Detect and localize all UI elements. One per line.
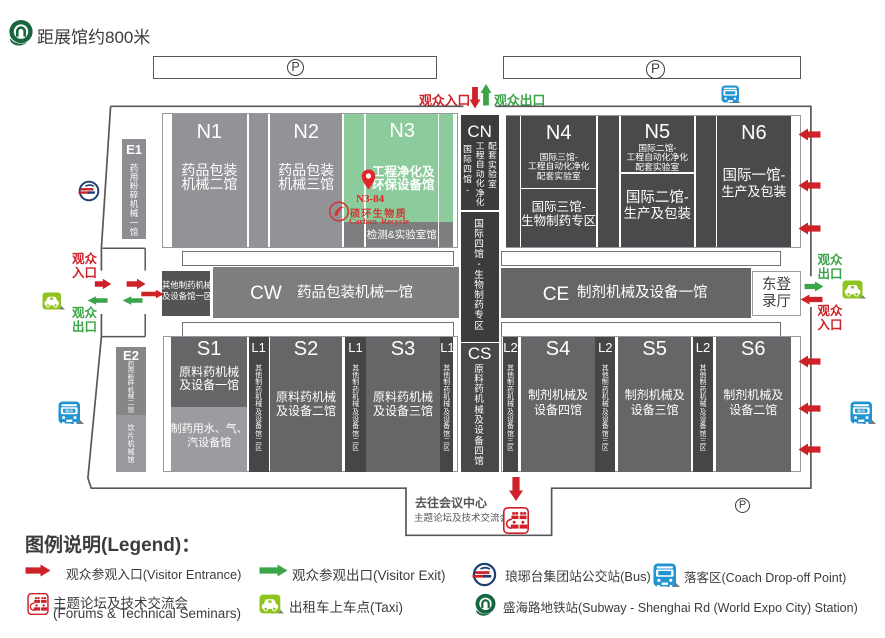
svg-text:BUS: BUS — [65, 409, 73, 413]
svg-text:BUS: BUS — [857, 409, 865, 413]
